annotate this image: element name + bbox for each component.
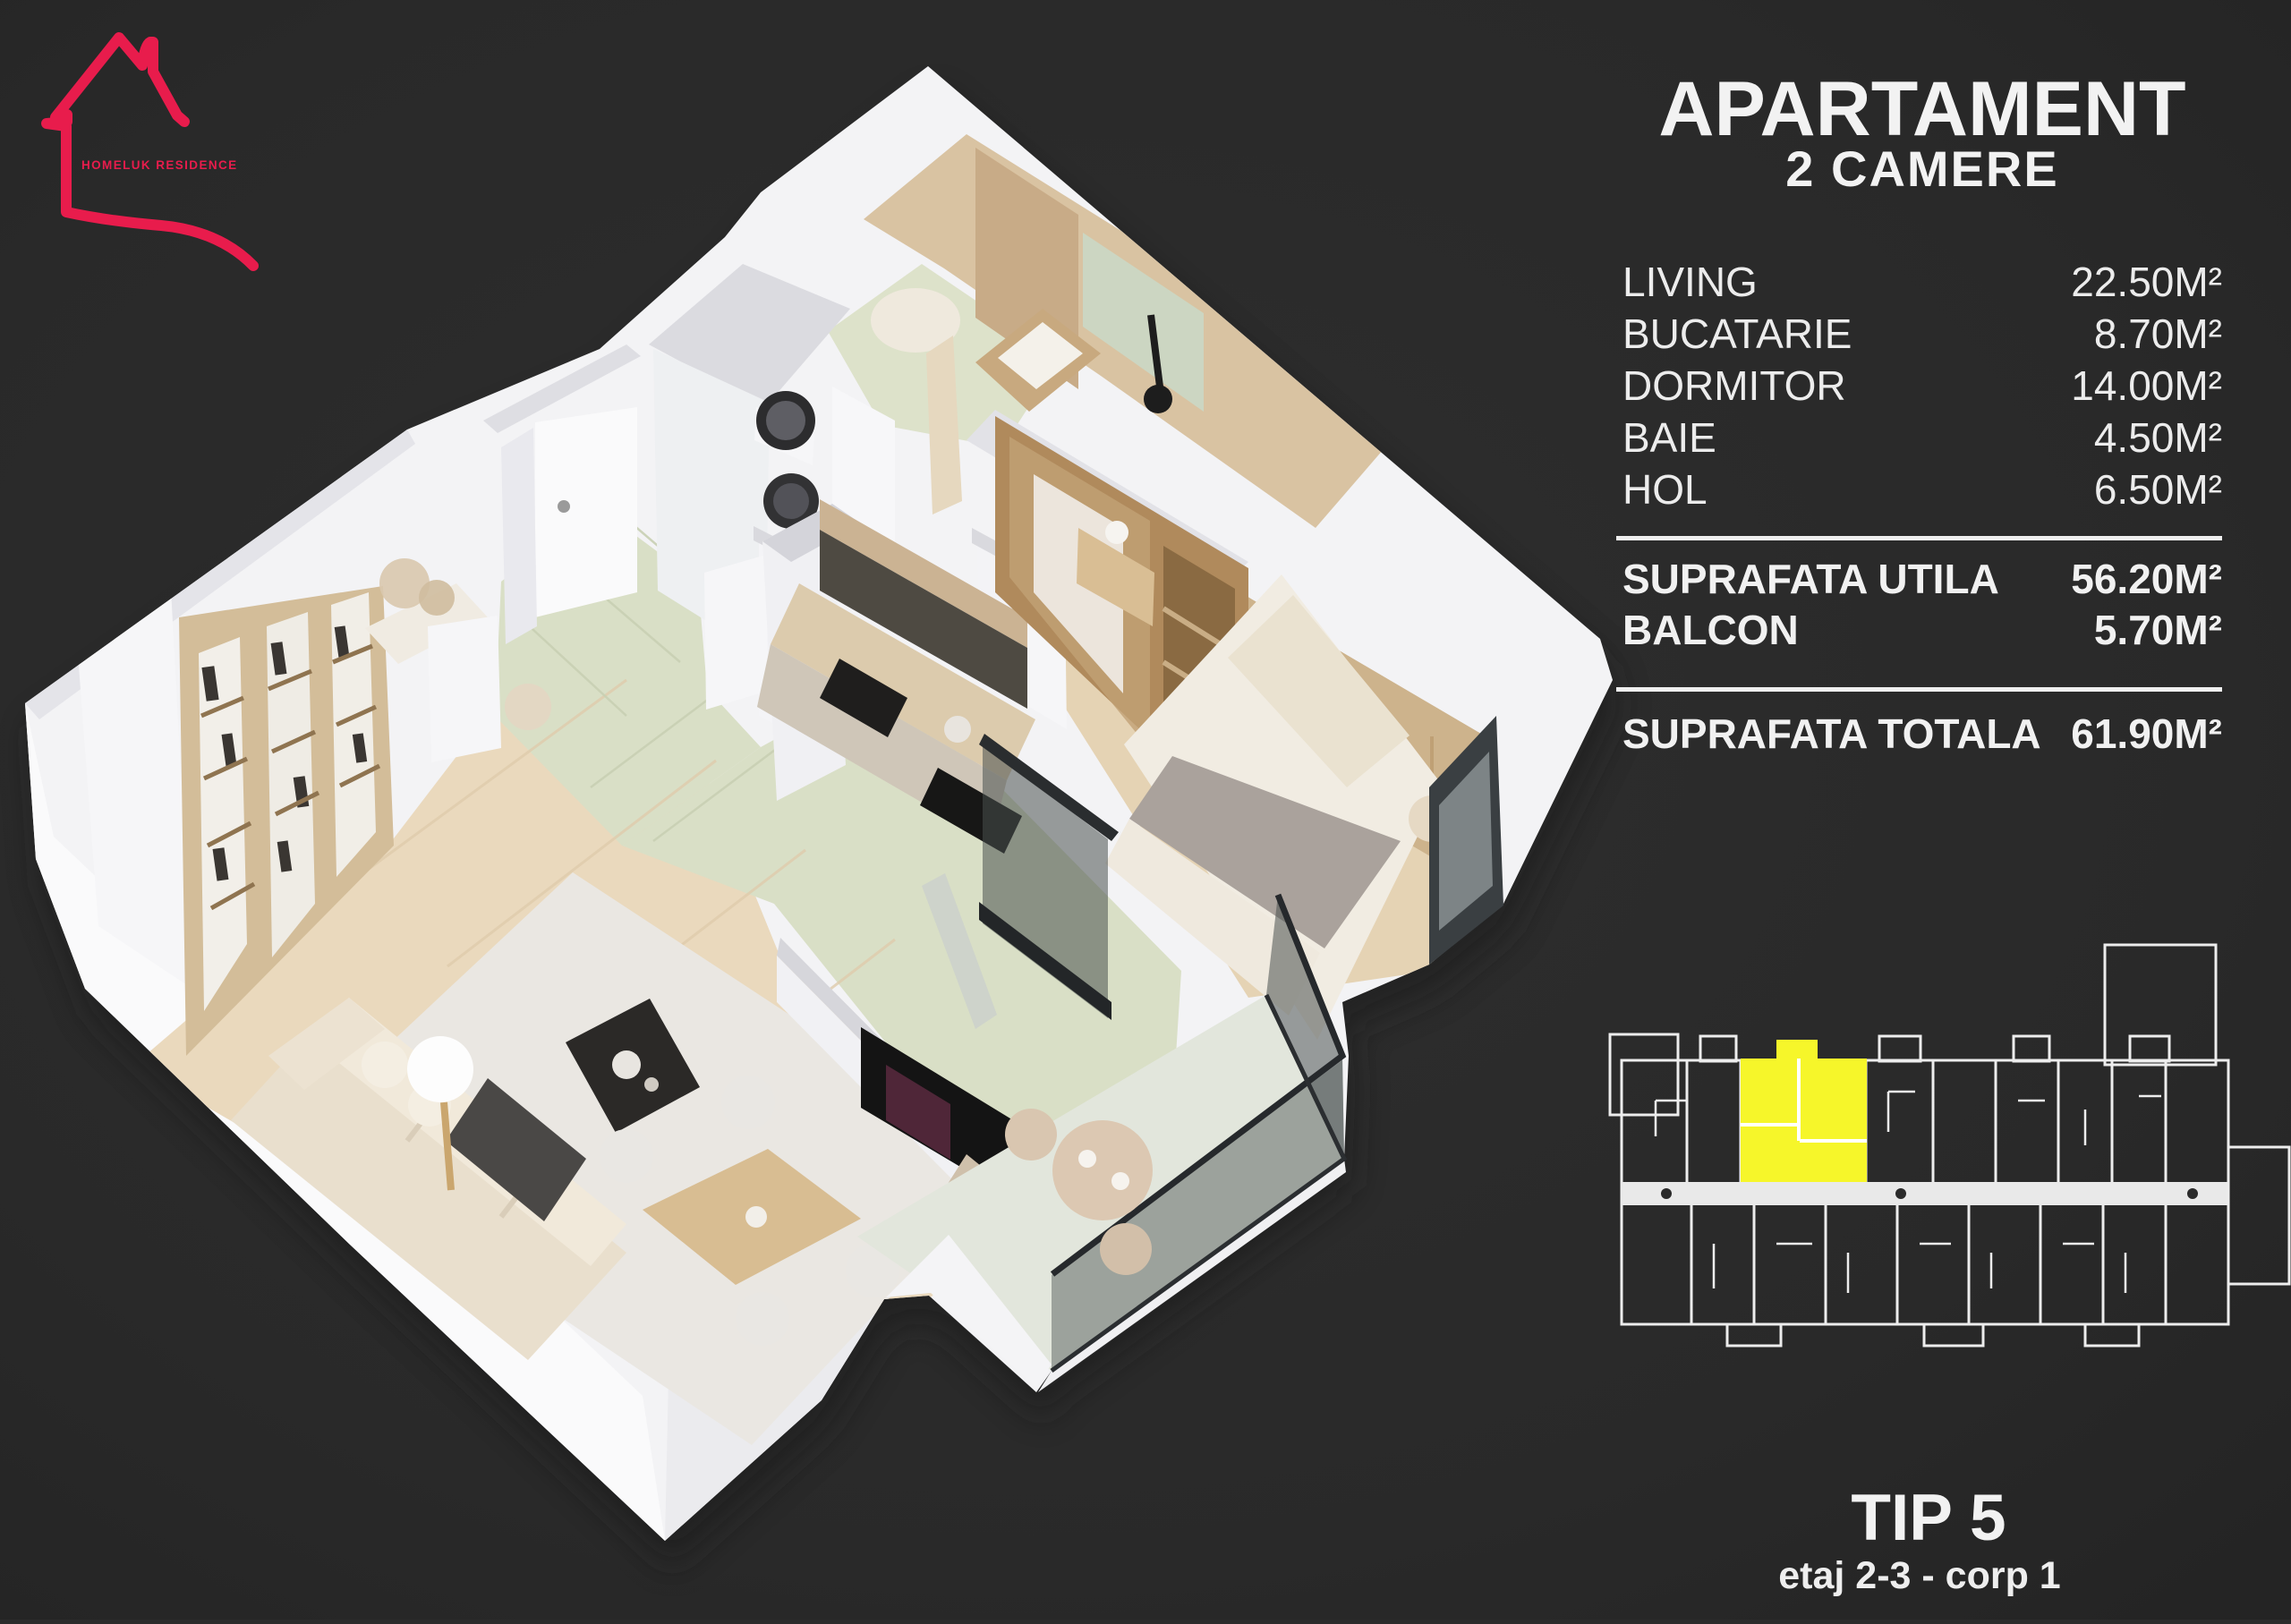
svg-text:5.70M²: 5.70M²	[2094, 607, 2222, 653]
svg-text:HOL: HOL	[1622, 466, 1708, 513]
svg-text:56.20M²: 56.20M²	[2071, 556, 2222, 602]
svg-text:SUPRAFATA UTILA: SUPRAFATA UTILA	[1622, 556, 1999, 602]
svg-text:BAIE: BAIE	[1622, 414, 1716, 461]
svg-text:LIVING: LIVING	[1622, 259, 1758, 305]
svg-text:SUPRAFATA TOTALA: SUPRAFATA TOTALA	[1622, 710, 2041, 757]
svg-text:BUCATARIE: BUCATARIE	[1622, 310, 1852, 357]
svg-text:BALCON: BALCON	[1622, 607, 1799, 653]
svg-text:4.50M²: 4.50M²	[2094, 414, 2222, 461]
svg-text:6.50M²: 6.50M²	[2094, 466, 2222, 513]
svg-text:14.00M²: 14.00M²	[2071, 362, 2222, 409]
svg-text:61.90M²: 61.90M²	[2071, 710, 2222, 757]
svg-text:DORMITOR: DORMITOR	[1622, 362, 1846, 409]
svg-text:etaj 2-3 - corp 1: etaj 2-3 - corp 1	[1778, 1554, 2060, 1597]
svg-text:2 CAMERE: 2 CAMERE	[1785, 140, 2058, 197]
svg-text:TIP 5: TIP 5	[1851, 1482, 2006, 1554]
svg-text:8.70M²: 8.70M²	[2094, 310, 2222, 357]
svg-text:22.50M²: 22.50M²	[2071, 259, 2222, 305]
svg-text:HOMELUK RESIDENCE: HOMELUK RESIDENCE	[81, 158, 238, 172]
svg-text:APARTAMENT: APARTAMENT	[1658, 66, 2185, 152]
